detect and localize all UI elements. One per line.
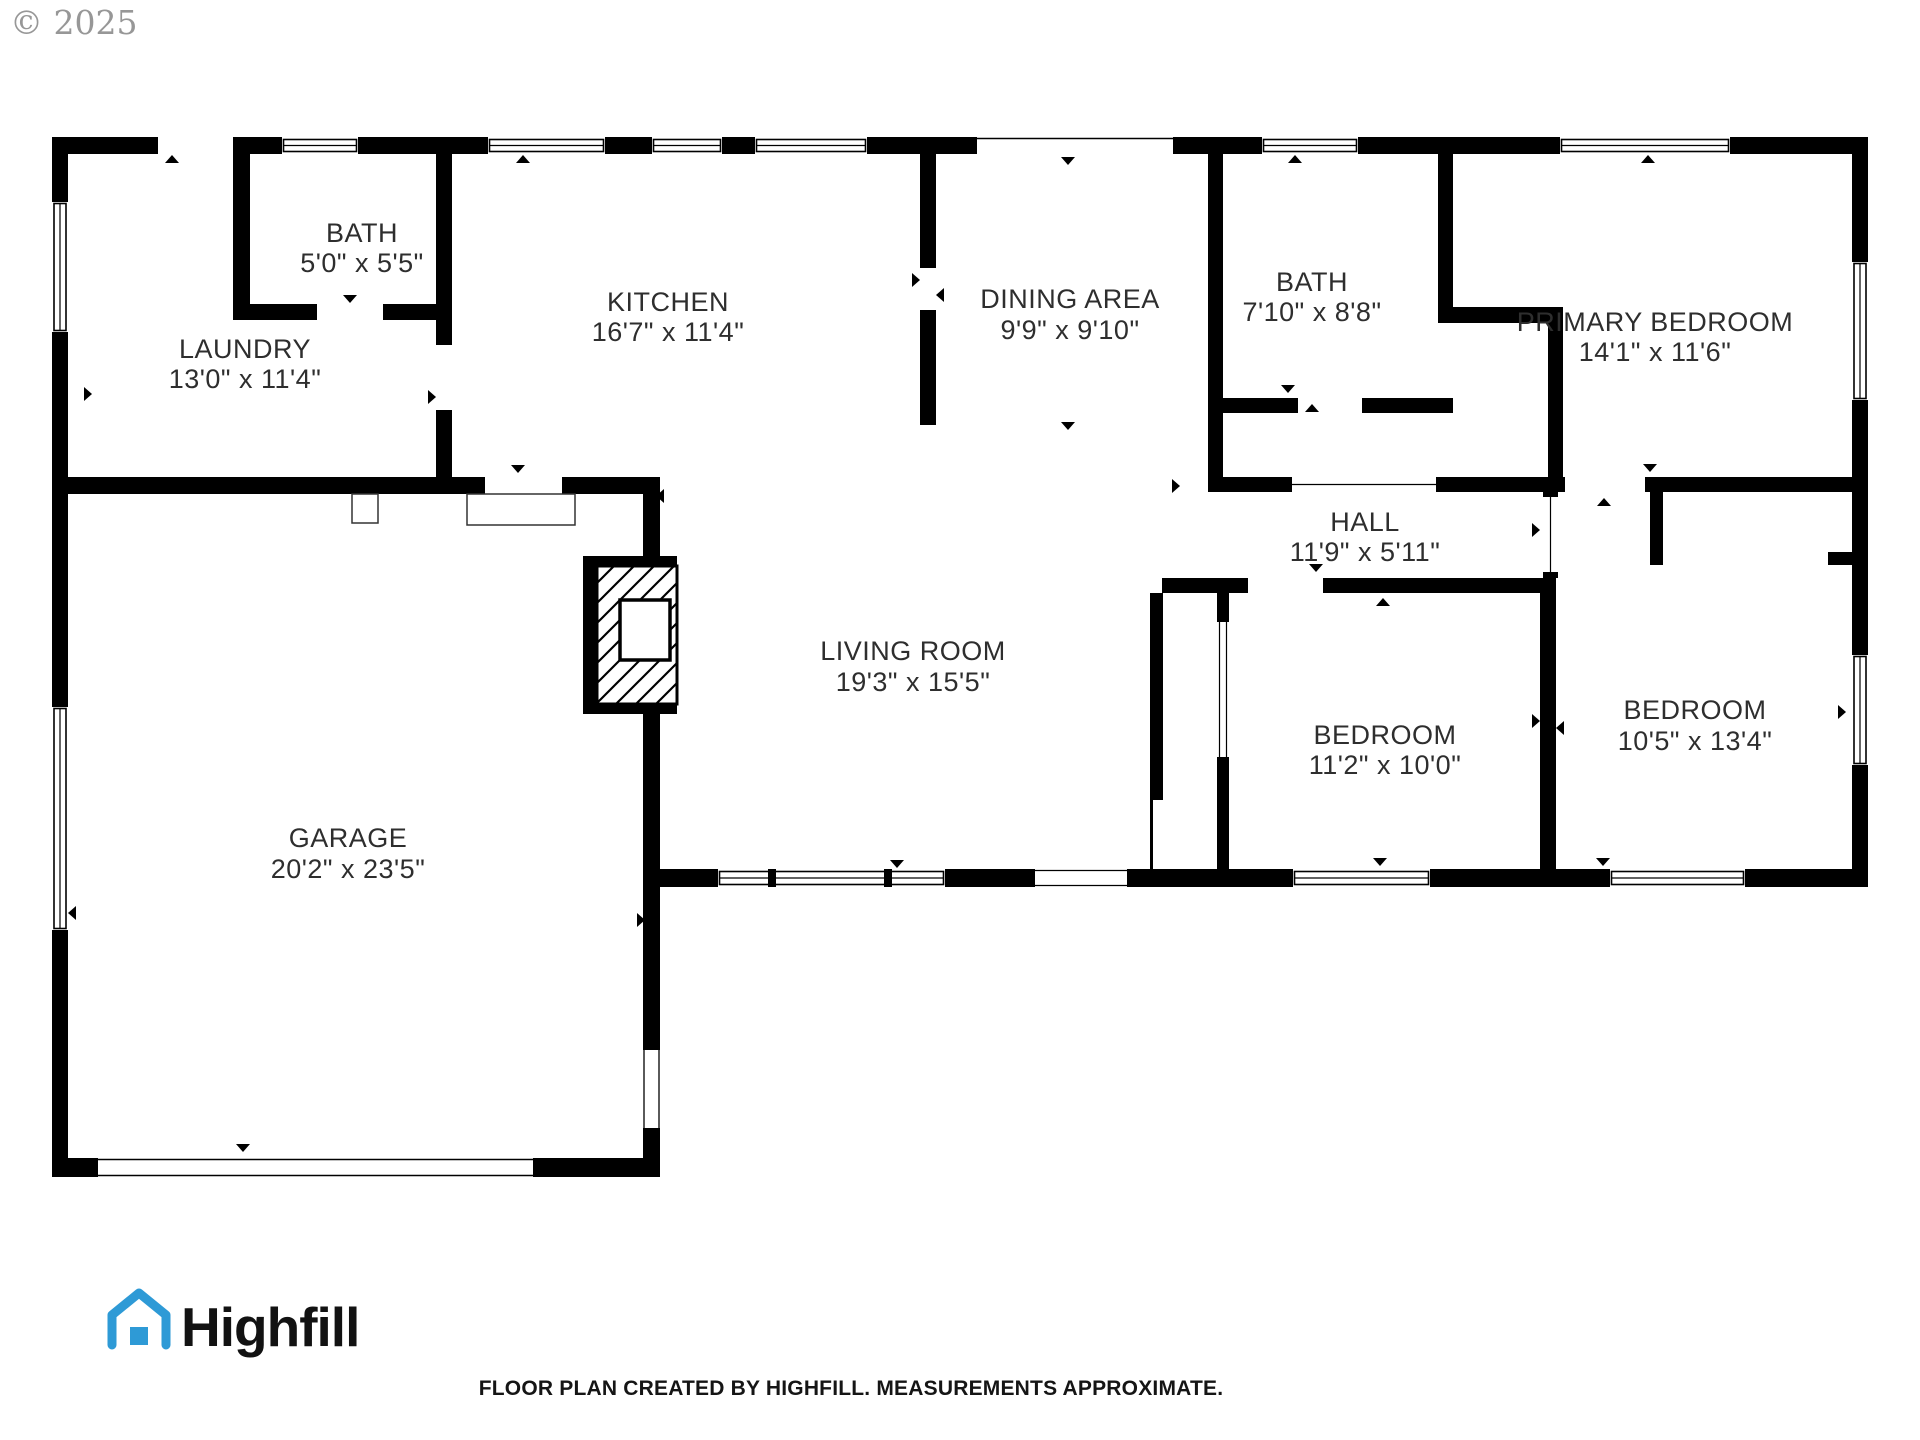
room-label-garage: GARAGE: [289, 823, 408, 853]
entry-steps: [352, 494, 575, 525]
copyright-watermark: © 2025: [10, 3, 137, 42]
house-icon: [112, 1293, 166, 1345]
room-dims-living-room: 19'3" x 15'5": [836, 667, 991, 697]
room-dims-bath-1: 5'0" x 5'5": [300, 248, 424, 278]
room-dims-garage: 20'2" x 23'5": [271, 854, 426, 884]
floor-plan-canvas: © 2025: [0, 0, 1920, 1440]
room-label-bath-1: BATH: [326, 218, 398, 248]
room-label-bedroom-2: BEDROOM: [1623, 695, 1766, 725]
room-dims-laundry: 13'0" x 11'4": [169, 364, 322, 394]
room-label-bath-2: BATH: [1276, 267, 1348, 297]
room-label-bedroom-1: BEDROOM: [1313, 720, 1456, 750]
room-dims-dining-area: 9'9" x 9'10": [1000, 315, 1139, 345]
highfill-logo: Highfill: [112, 1293, 359, 1358]
room-dims-bedroom-2: 10'5" x 13'4": [1618, 726, 1773, 756]
floor-plan-disclaimer: FLOOR PLAN CREATED BY HIGHFILL. MEASUREM…: [479, 1377, 1223, 1400]
room-dims-primary-bedroom: 14'1" x 11'6": [1579, 337, 1732, 367]
room-label-laundry: LAUNDRY: [179, 334, 311, 364]
fireplace: [583, 556, 677, 714]
room-dims-bedroom-1: 11'2" x 10'0": [1309, 750, 1462, 780]
room-label-dining-area: DINING AREA: [980, 284, 1160, 314]
floor-plan-page: © 2025: [0, 0, 1920, 1440]
room-dims-bath-2: 7'10" x 8'8": [1242, 297, 1381, 327]
room-dims-kitchen: 16'7" x 11'4": [592, 317, 745, 347]
brand-name: Highfill: [181, 1296, 359, 1358]
room-label-primary-bedroom: PRIMARY BEDROOM: [1517, 307, 1794, 337]
room-dims-hall: 11'9" x 5'11": [1290, 537, 1441, 567]
room-label-kitchen: KITCHEN: [607, 287, 729, 317]
room-label-hall: HALL: [1330, 507, 1400, 537]
room-label-living-room: LIVING ROOM: [820, 636, 1006, 666]
